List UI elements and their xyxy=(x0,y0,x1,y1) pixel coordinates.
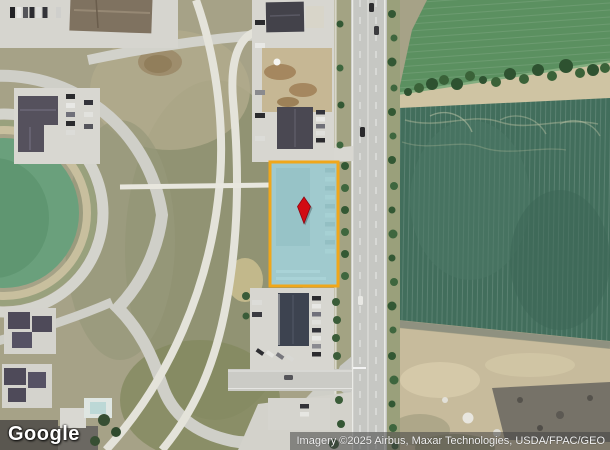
attribution-text: Imagery ©2025 Airbus, Maxar Technologies… xyxy=(297,435,606,447)
vehicle xyxy=(284,375,293,380)
driveway xyxy=(334,146,353,162)
satellite-map-canvas[interactable]: Google Imagery ©2025 Airbus, Maxar Techn… xyxy=(0,0,610,450)
highlighted-parcel[interactable] xyxy=(270,162,338,286)
satellite-imagery xyxy=(0,0,610,450)
building-roof xyxy=(266,2,305,33)
farm-fields xyxy=(390,0,610,450)
attribution-bar[interactable]: Imagery ©2025 Airbus, Maxar Technologies… xyxy=(290,432,610,450)
brown-roof-building xyxy=(69,0,152,33)
google-logo[interactable]: Google xyxy=(8,423,80,446)
connector-sidewalk xyxy=(120,185,270,187)
